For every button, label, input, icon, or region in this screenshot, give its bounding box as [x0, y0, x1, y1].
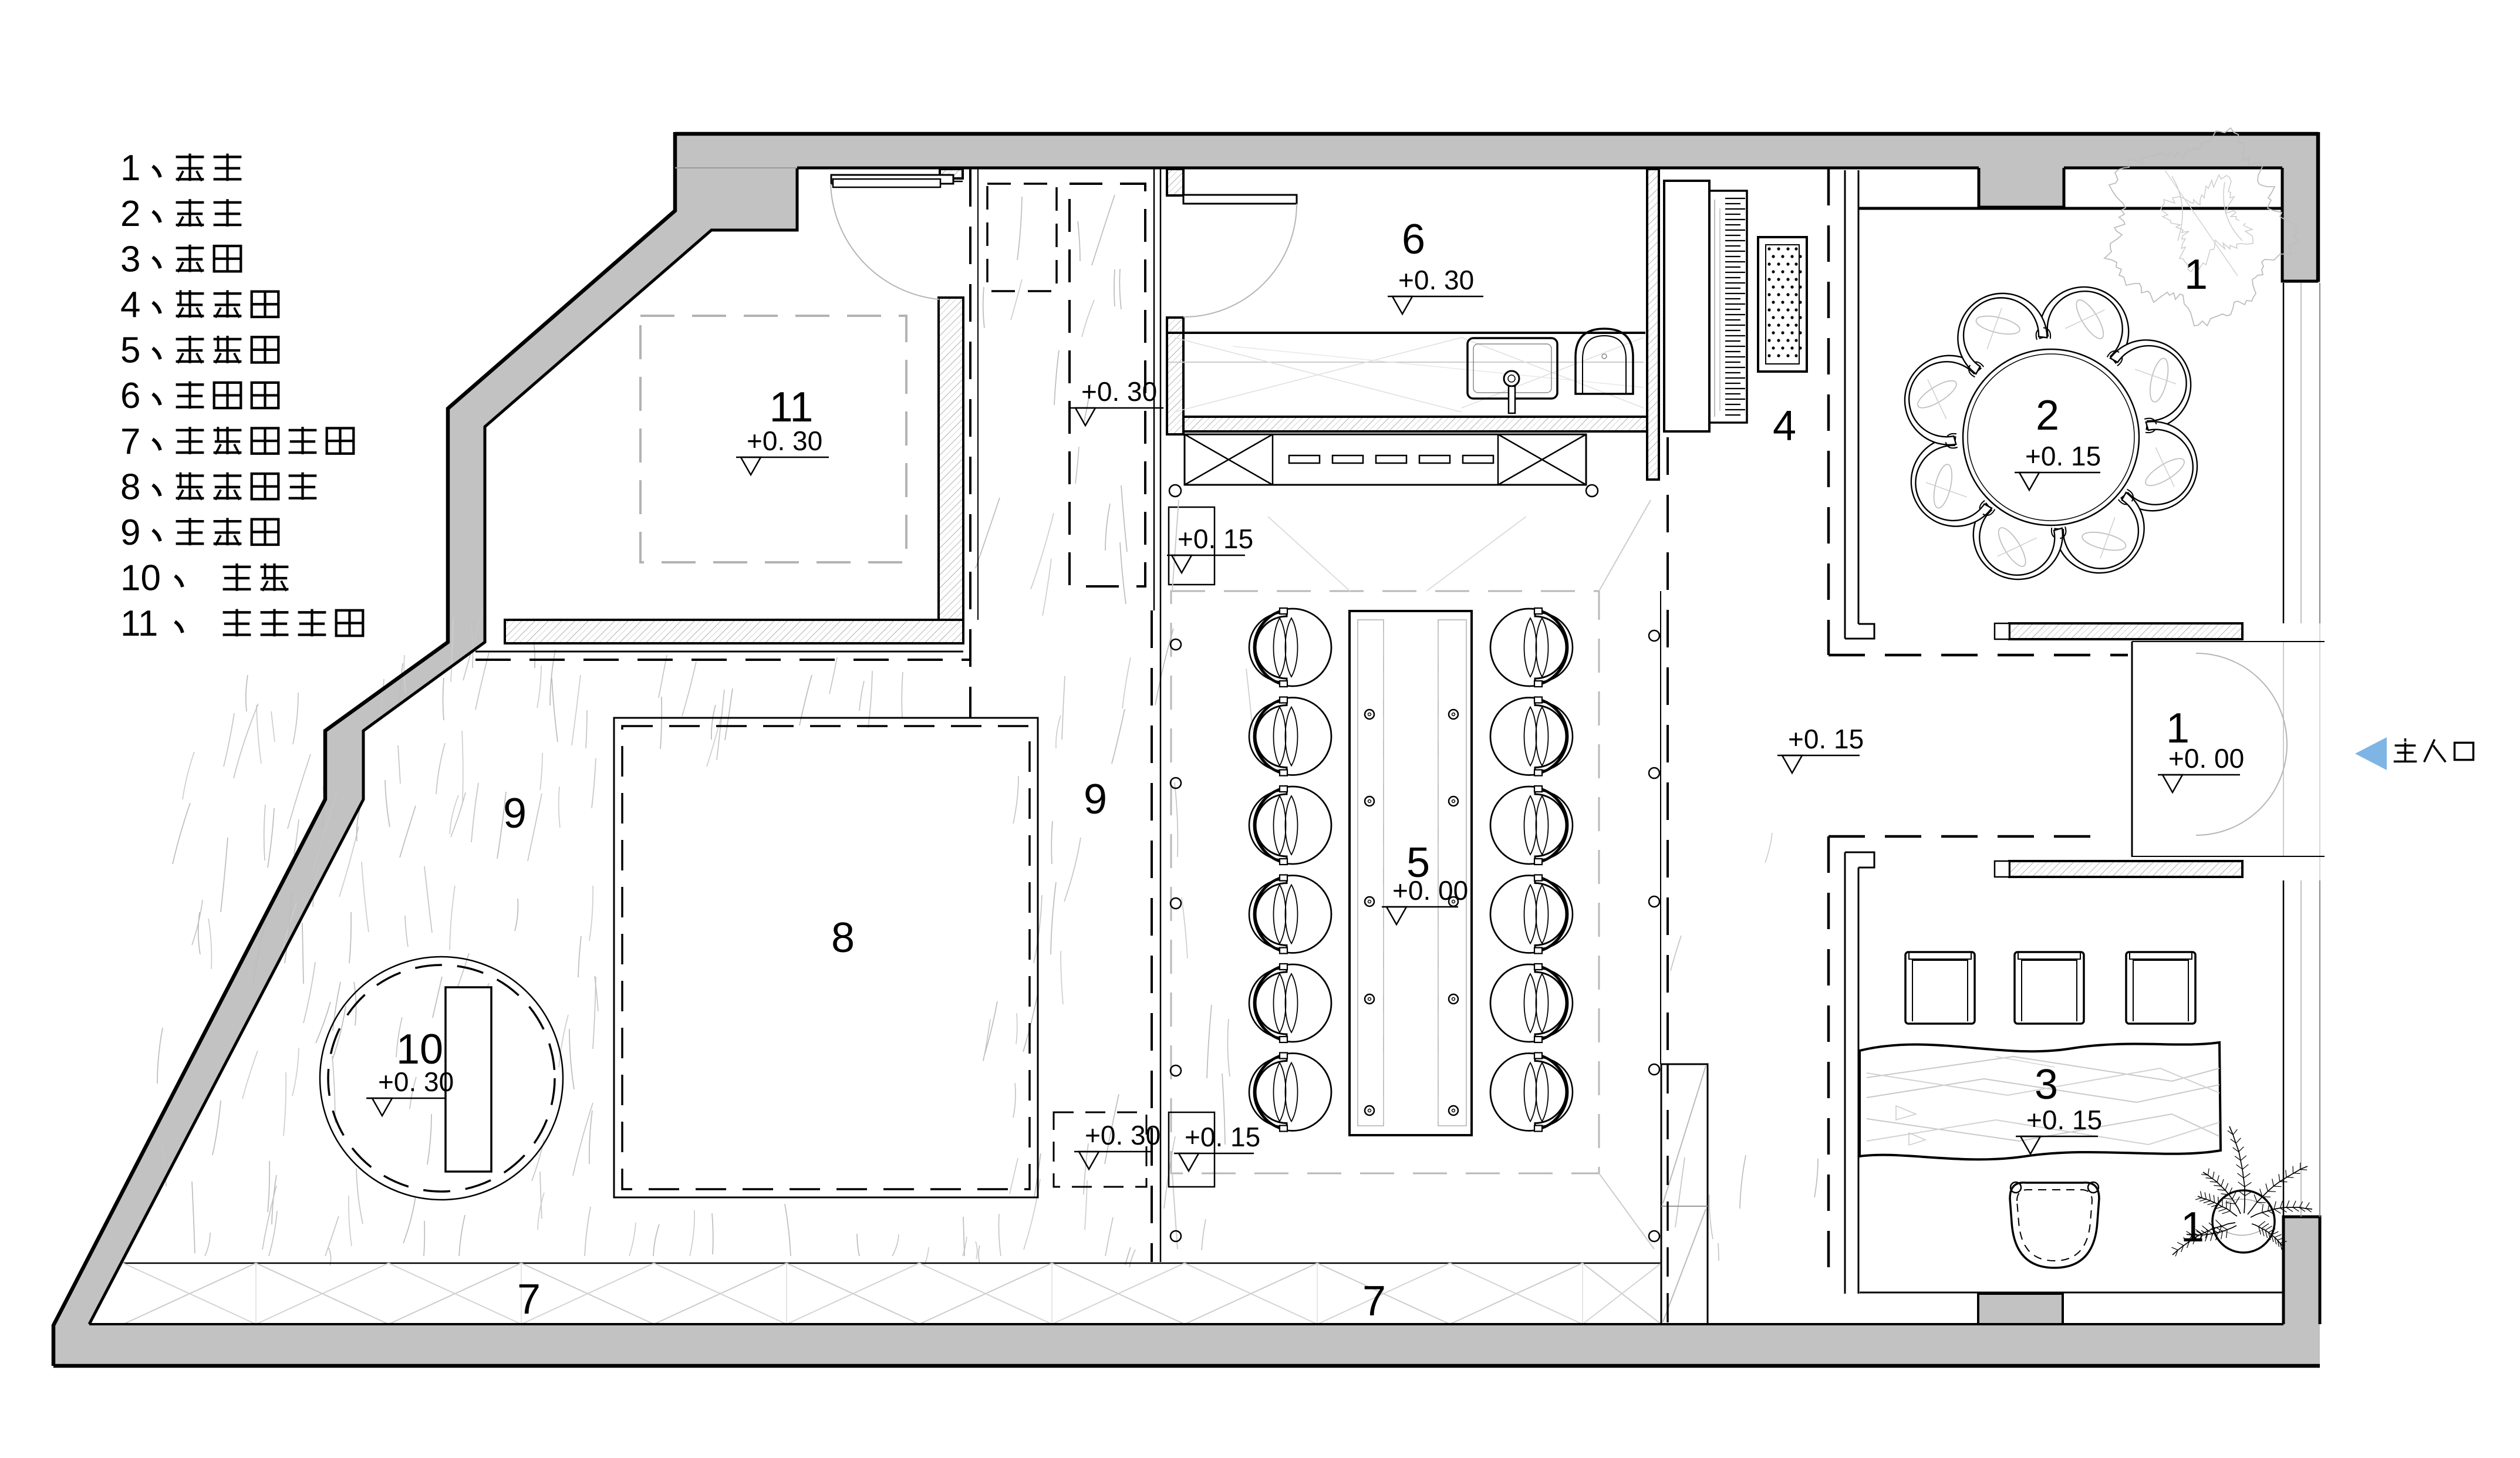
- svg-text:8: 8: [831, 914, 855, 961]
- svg-text:4: 4: [120, 285, 140, 325]
- svg-text:9: 9: [503, 790, 527, 837]
- svg-text:7: 7: [517, 1276, 541, 1323]
- svg-text:3: 3: [2035, 1061, 2058, 1108]
- svg-text:6: 6: [1402, 216, 1425, 263]
- svg-text:9: 9: [1084, 776, 1107, 823]
- svg-text:+0. 15: +0. 15: [1178, 524, 1253, 554]
- svg-text:4: 4: [1773, 403, 1796, 450]
- svg-text:9: 9: [120, 512, 140, 553]
- svg-text:8: 8: [120, 467, 140, 507]
- svg-text:+0. 15: +0. 15: [1185, 1122, 1260, 1152]
- svg-text:2: 2: [2036, 392, 2059, 439]
- svg-text:+0. 30: +0. 30: [1081, 376, 1157, 407]
- svg-text:+0. 15: +0. 15: [2025, 441, 2101, 471]
- svg-text:+0. 30: +0. 30: [1085, 1120, 1161, 1150]
- svg-text:5: 5: [1406, 839, 1430, 886]
- svg-text:11: 11: [120, 603, 158, 644]
- svg-text:6: 6: [120, 376, 140, 416]
- svg-text:10: 10: [396, 1026, 443, 1073]
- svg-text:2: 2: [120, 194, 140, 234]
- svg-text:+0. 00: +0. 00: [1392, 875, 1468, 906]
- svg-text:1: 1: [120, 148, 140, 188]
- svg-text:+0. 15: +0. 15: [1788, 724, 1864, 754]
- svg-text:1: 1: [2181, 1204, 2204, 1251]
- svg-text:1: 1: [2166, 705, 2190, 752]
- svg-text:7: 7: [1362, 1278, 1386, 1325]
- svg-text:7: 7: [120, 421, 140, 462]
- svg-text:+0. 30: +0. 30: [1398, 265, 1474, 295]
- svg-text:5: 5: [120, 330, 140, 371]
- svg-text:1: 1: [2184, 251, 2208, 298]
- svg-text:10: 10: [120, 558, 161, 599]
- svg-text:3: 3: [120, 239, 140, 279]
- svg-text:+0. 15: +0. 15: [2026, 1105, 2102, 1135]
- svg-text:11: 11: [770, 384, 814, 431]
